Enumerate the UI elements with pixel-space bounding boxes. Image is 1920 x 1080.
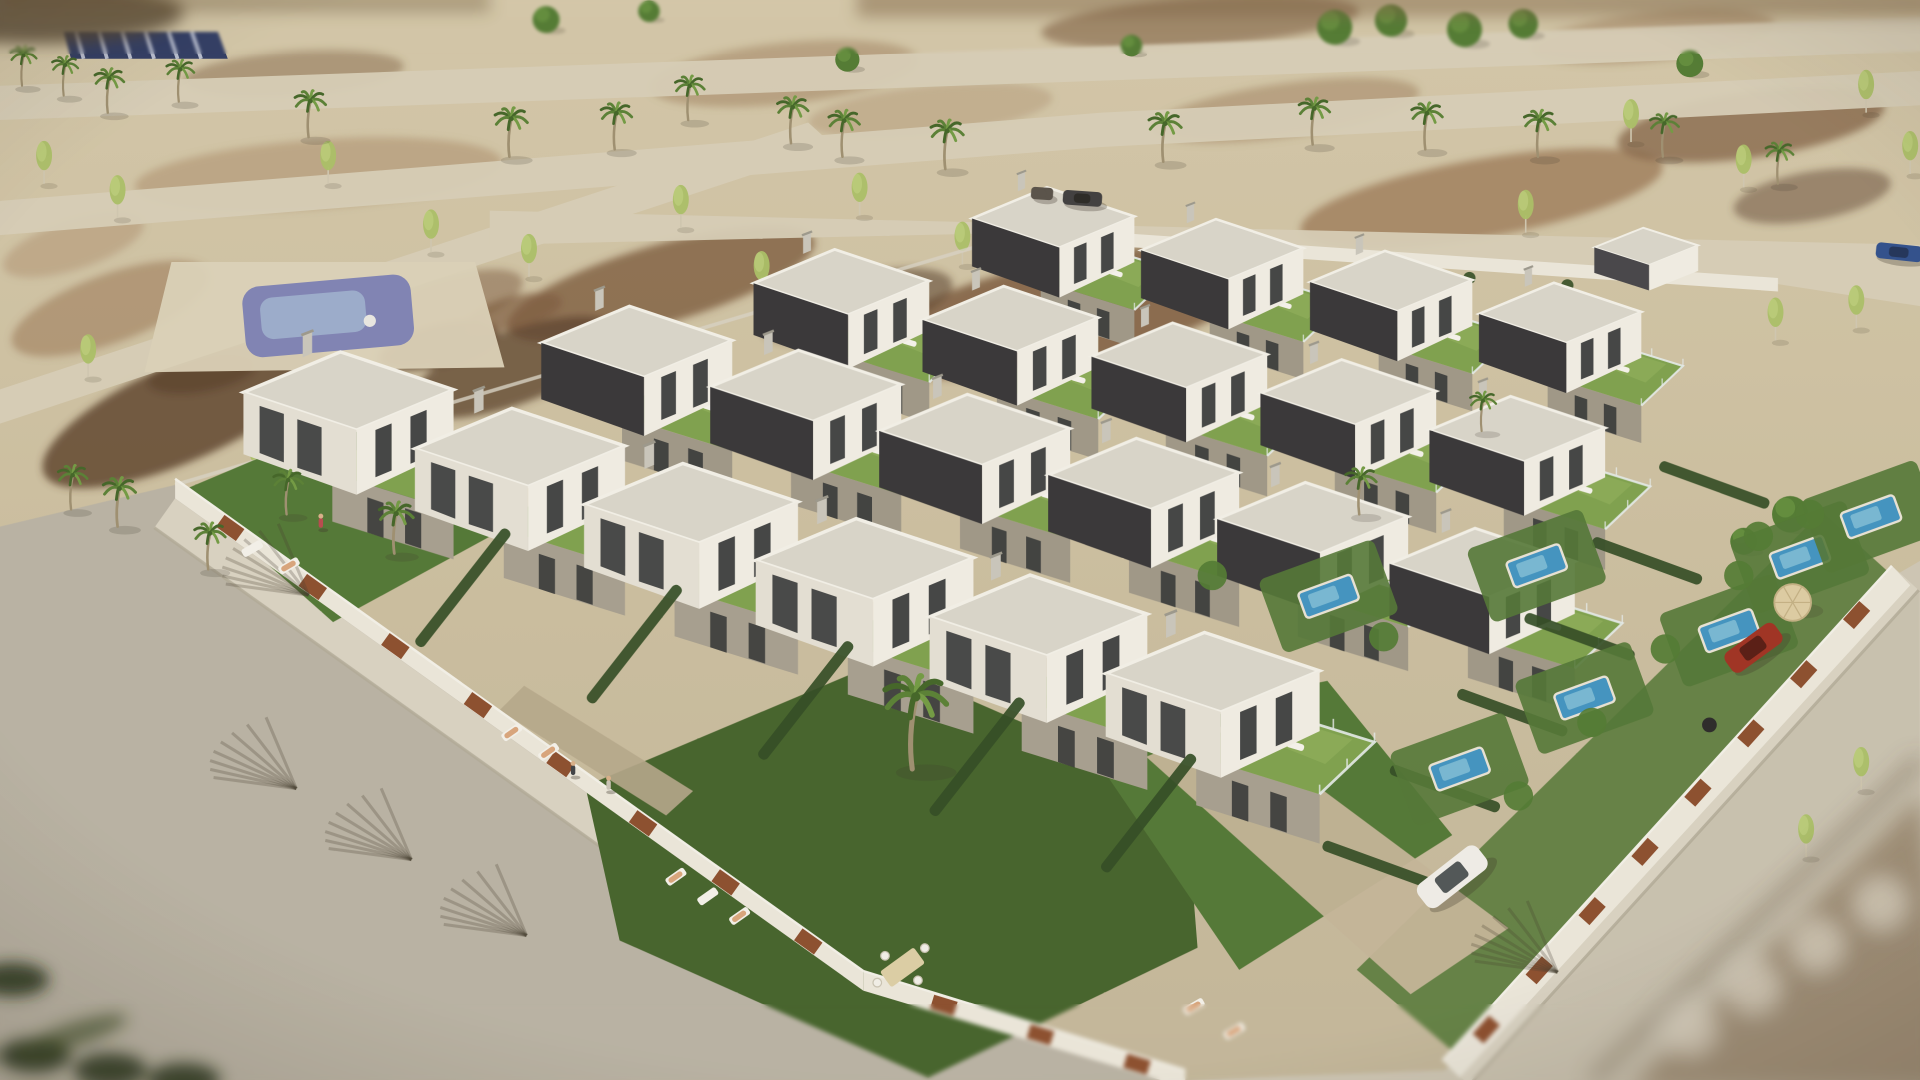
vignette-overlay bbox=[0, 0, 1920, 1080]
aerial-render-stage bbox=[0, 0, 1920, 1080]
aerial-villa-development-render bbox=[0, 0, 1920, 1080]
